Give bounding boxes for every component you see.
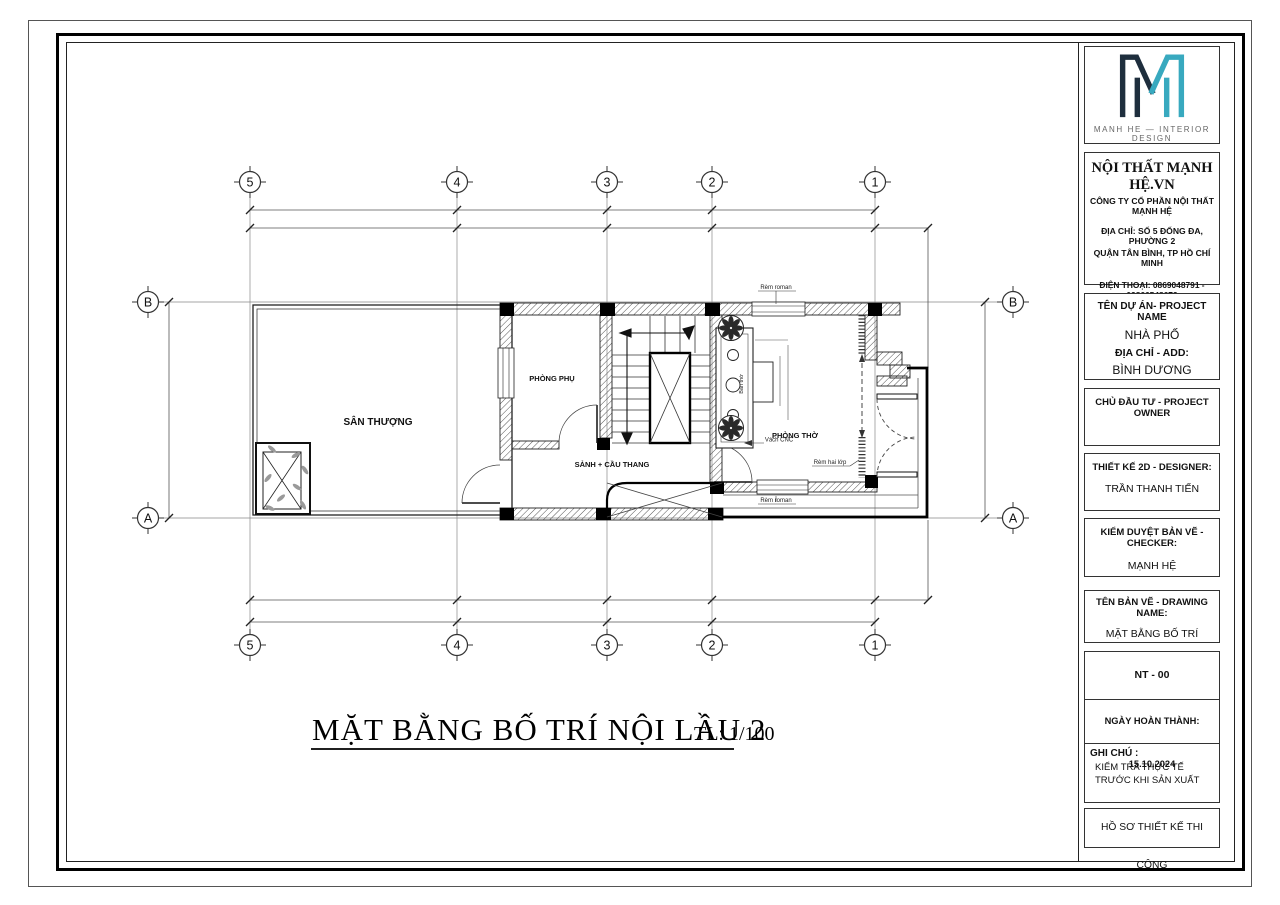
grid-bubble-3-bottom: 3 [604,639,611,653]
checker-box: KIỂM DUYỆT BẢN VẼ - CHECKER: MẠNH HỆ [1084,518,1220,577]
grid-bubble-5-bottom: 5 [247,639,254,653]
company-address-1: ĐỊA CHỈ: SỐ 5 ĐỐNG ĐA, PHƯỜNG 2 [1085,226,1219,246]
project-label: TÊN DỰ ÁN- PROJECT NAME [1085,301,1219,323]
company-box: NỘI THẤT MẠNH HỆ.VN CÔNG TY CỔ PHẦN NỘI … [1084,152,1220,285]
titleblock-divider [1078,42,1079,862]
annotation-vach-cnc: Vách CNC [765,438,794,444]
plant-top [719,316,744,341]
company-legal-name: CÔNG TY CỔ PHẦN NỘI THẤT MẠNH HỆ [1085,196,1219,216]
room-label-aux-room: PHÒNG PHỤ [529,374,574,383]
checker-label: KIỂM DUYỆT BẢN VẼ - CHECKER: [1085,527,1219,549]
annotation-rem-roman-top: Rèm roman [760,285,791,291]
grid-bubble-1-top: 1 [872,176,879,190]
grid-bubbles: 5 4 3 2 1 5 4 3 2 1 B A B A [132,166,1029,661]
grid-bubble-1-bottom: 1 [872,639,879,653]
grid-bubble-A-left: A [144,512,153,526]
curtain-double-layer [859,315,865,478]
annotation-rem-hai-lop: Rèm hai lớp [814,460,847,466]
company-address-2: QUẬN TÂN BÌNH, TP HỒ CHÍ MINH [1085,248,1219,268]
completion-date: NGÀY HOÀN THÀNH: 15.10.2024 [1085,699,1219,743]
logo-brand-text: MANH HE — INTERIOR DESIGN [1085,125,1219,143]
company-name: NỘI THẤT MẠNH HỆ.VN [1085,160,1219,194]
drawing-name-box: TÊN BẢN VẼ - DRAWING NAME: MẶT BẰNG BỐ T… [1084,590,1220,643]
room-label-terrace: SÂN THƯỢNG [343,415,412,428]
annotation-ban-tho: Bàn thờ [739,374,745,394]
planter-box [256,443,310,514]
designer-label: THIẾT KẾ 2D - DESIGNER: [1085,462,1219,473]
annotation-rem-roman-bottom: Rèm roman [760,498,791,504]
note-line-2: TRƯỚC KHI SẢN XUẤT [1085,774,1219,787]
walls-hatched [500,303,910,520]
project-box: TÊN DỰ ÁN- PROJECT NAME NHÀ PHỐ ĐỊA CHỈ … [1084,293,1220,380]
drawing-sheet: { "title": { "main": "MẶT BẰNG BỐ TRÍ NỘ… [0,0,1280,905]
grid-bubble-B-left: B [144,296,152,310]
dossier-type-box: HỒ SƠ THIẾT KẾ THI CÔNG [1084,808,1220,848]
title-block: MANH HE — INTERIOR DESIGN NỘI THẤT MẠNH … [1082,42,1222,862]
double-door [877,394,917,477]
note-line-1: KIỂM TRA THỰC TẾ [1085,759,1219,774]
owner-box: CHỦ ĐẦU TƯ - PROJECT OWNER [1084,388,1220,446]
room-label-hall-stairs: SẢNH + CẦU THANG [575,459,650,469]
grid-bubble-4-top: 4 [454,176,461,190]
drawing-name-value: MẶT BẰNG BỐ TRÍ [1085,628,1219,640]
owner-label: CHỦ ĐẦU TƯ - PROJECT OWNER [1085,397,1219,419]
designer-name: TRẦN THANH TIẾN [1085,483,1219,495]
grid-bubble-B-right: B [1009,296,1017,310]
grid-bubble-3-top: 3 [604,176,611,190]
designer-box: THIẾT KẾ 2D - DESIGNER: TRẦN THANH TIẾN [1084,453,1220,511]
project-address-label: ĐỊA CHỈ - ADD: [1085,347,1219,359]
logo-box: MANH HE — INTERIOR DESIGN [1084,46,1220,144]
grid-bubble-A-right: A [1009,512,1018,526]
project-name: NHÀ PHỐ [1085,328,1219,342]
checker-name: MẠNH HỆ [1085,560,1219,572]
project-address-value: BÌNH DƯƠNG [1085,363,1219,377]
sheet-info-box: NT - 00 NGÀY HOÀN THÀNH: 15.10.2024 GHI … [1084,651,1220,803]
grid-bubble-5-top: 5 [247,176,254,190]
sheet-title: MẶT BẰNG BỐ TRÍ NỘI LẦU 2 TL: 1/100 [311,711,775,749]
grid-bubble-4-bottom: 4 [454,639,461,653]
grid-bubble-2-bottom: 2 [709,639,716,653]
dimension-ticks [165,206,989,626]
company-logo-icon [1108,51,1196,119]
staircase [612,316,710,444]
sheet-title-scale: TL: 1/100 [694,723,775,745]
grid-bubble-2-top: 2 [709,176,716,190]
drawing-name-label: TÊN BẢN VẼ - DRAWING NAME: [1085,597,1219,619]
plant-bottom [719,416,744,441]
dimension-lines [169,210,985,622]
sheet-code: NT - 00 [1085,652,1219,699]
floor-plan-drawing: 5 4 3 2 1 5 4 3 2 1 B A B A SÂN THƯỢNG P… [66,42,1078,862]
grid-lines [162,196,1000,631]
